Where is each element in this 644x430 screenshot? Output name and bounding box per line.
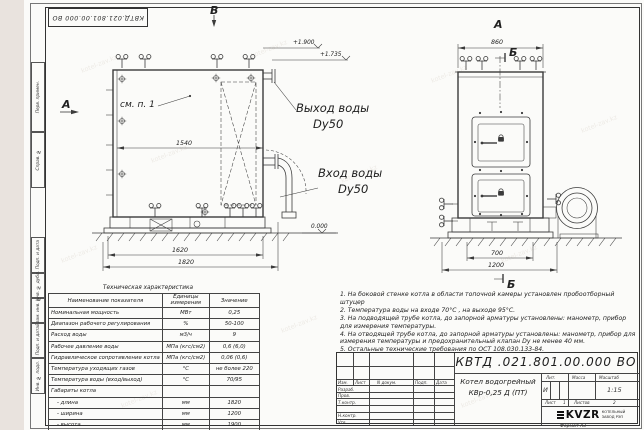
valve-icon (476, 57, 488, 71)
row-name: Габариты котла (49, 386, 163, 397)
col-header-name: Наименование показателя (49, 294, 163, 308)
ground-hatch (96, 233, 289, 241)
valve-icon (460, 57, 472, 71)
row-name: Рабочее давление воды (49, 341, 163, 352)
lit-label: Лит. (546, 375, 556, 380)
scale-value: 1:15 (607, 386, 622, 394)
table-row: Габариты котла (49, 386, 260, 397)
mass-label: Масса (572, 375, 585, 380)
see-note-label: см. п. 1 (120, 100, 155, 110)
outlet-dn: Dy50 (313, 117, 343, 131)
row-name: - длина (49, 397, 163, 408)
valve-icon (224, 204, 236, 218)
sheets-label: Листов (574, 400, 590, 405)
sheet-label: Лист (545, 400, 556, 405)
row-prov: Пров. (338, 393, 350, 398)
col-ndoc: N докум. (377, 380, 396, 385)
table-row: Диапазон рабочего регулирования%50-100 (49, 319, 260, 330)
sheets-value: 2 (613, 400, 616, 405)
col-list: Лист (355, 380, 366, 385)
valve-icon (116, 55, 128, 69)
valve-icon (250, 204, 262, 218)
row-value: 1900 (209, 419, 259, 430)
doc-title: Котел водогрейный КВр-0,25 Д (ПТ) (455, 377, 541, 399)
row-unit: мм (162, 408, 209, 419)
row-unit: мм (162, 419, 209, 430)
view-letter-B: В (210, 4, 218, 17)
ground-hatch (434, 238, 616, 246)
col-data: Дата (436, 380, 447, 385)
section-mark-bottom (494, 274, 503, 283)
fan-duct (543, 207, 556, 218)
table-row: Рабочее давление водыМПа (кгс/см2)0,6 (6… (49, 341, 260, 352)
dim-1540: 1540 (176, 140, 192, 147)
col-izm: Изм. (338, 380, 348, 385)
note-item: 2. Температура воды на входе 70°С , на в… (340, 307, 638, 315)
format-label: Формат А3 (560, 424, 586, 429)
col-header-unit: Единицы измерения (162, 294, 209, 308)
row-name: Номинальная мощность (49, 308, 163, 319)
table-row: - ширинамм1200 (49, 408, 260, 419)
company-logo: KVZR КОТЕЛЬНЫЙ ЗАВОД РЭП (545, 407, 637, 423)
logo-sub2: ЗАВОД РЭП (602, 415, 626, 420)
row-value: 50-100 (209, 319, 259, 330)
dimension-line (458, 44, 543, 68)
col-podp: Подп. (415, 380, 428, 385)
dim-1620: 1620 (172, 247, 188, 254)
table-row: - высотамм1900 (49, 419, 260, 430)
row-name: Температура уходящих газов (49, 363, 163, 374)
note-item: 4. На отводящей трубе котла, до запорной… (340, 331, 638, 346)
row-value: не более 220 (209, 363, 259, 374)
valve-icon (440, 215, 454, 227)
center-mark (118, 117, 126, 125)
side-view-letter-A: А (494, 18, 503, 31)
table-row: Номинальная мощностьМВт0,25 (49, 308, 260, 319)
drawing-sheet: kotel-zav.kz kotel-zav.kz kotel-zav.kz k… (0, 0, 644, 430)
title-designation: КВТД .021.801.00.000 ВО (455, 355, 637, 369)
spec-table-title: Техническая характеристика (48, 285, 248, 291)
row-value: 0,6 (6,0) (209, 341, 259, 352)
row-razrab: Разраб. (338, 387, 354, 392)
lit-value: И (543, 386, 548, 394)
logo-subtext: КОТЕЛЬНЫЙ ЗАВОД РЭП (602, 410, 626, 419)
row-unit: МВт (162, 308, 209, 319)
inlet-label: Вход воды (318, 166, 382, 180)
center-mark (247, 74, 255, 82)
fan-blower (557, 188, 599, 239)
row-unit: МПа (кгс/см2) (162, 352, 209, 363)
row-value: 9 (209, 330, 259, 341)
col-header-value: Значение (209, 294, 259, 308)
spec-header-row: Наименование показателя Единицы измерени… (49, 294, 260, 308)
row-name: - ширина (49, 408, 163, 419)
center-mark (212, 74, 220, 82)
direction-letter-A: А (62, 98, 71, 111)
logo-text: KVZR (566, 409, 600, 421)
level-1900: +1.900 (293, 40, 314, 46)
valve-icon (243, 55, 255, 69)
level-0000: 0.000 (311, 224, 328, 230)
table-row: Расход водым3/ч9 (49, 330, 260, 341)
valve-icon (530, 57, 542, 71)
row-value (209, 386, 259, 397)
dashed-panel (221, 82, 256, 205)
scale-label: Масштаб (599, 375, 619, 380)
side-view-drawing (430, 44, 622, 283)
table-row: Температура воды (вход/выход)°С70/95 (49, 375, 260, 386)
note-item: 3. На подводящей трубе котла, до запорно… (340, 315, 638, 330)
row-unit (162, 386, 209, 397)
row-tkontr: Т.контр. (338, 400, 356, 405)
row-unit: °С (162, 375, 209, 386)
center-mark (118, 75, 126, 83)
row-value: 70/95 (209, 375, 259, 386)
row-unit: м3/ч (162, 330, 209, 341)
row-value: 0,25 (209, 308, 259, 319)
row-unit: мм (162, 397, 209, 408)
row-utv: Утв. (338, 420, 347, 425)
doc-title-line2: КВр-0,25 Д (ПТ) (455, 388, 541, 399)
valve-icon (149, 204, 161, 218)
valve-icon (440, 198, 454, 210)
row-name: - высота (49, 419, 163, 430)
inlet-elbow-pipe (263, 150, 306, 218)
row-name: Расход воды (49, 330, 163, 341)
row-value: 0,06 (0,6) (209, 352, 259, 363)
inlet-dn: Dy50 (338, 182, 368, 196)
row-value: 1820 (209, 397, 259, 408)
row-unit: % (162, 319, 209, 330)
valve-icon (196, 204, 208, 218)
furnace-door-upper (472, 117, 530, 167)
level-mark (263, 44, 350, 233)
doc-title-line1: Котел водогрейный (455, 377, 541, 388)
table-row: Гидравлическое сопротивление котлаМПа (к… (49, 352, 260, 363)
door-bolts (474, 111, 528, 216)
boiler-base (448, 218, 553, 238)
valve-icon (139, 55, 151, 69)
dim-700: 700 (491, 250, 503, 257)
valve-icon (237, 204, 249, 218)
valve-icon (211, 55, 223, 69)
row-value: 1200 (209, 408, 259, 419)
row-unit: МПа (кгс/см2) (162, 341, 209, 352)
dim-860: 860 (491, 39, 503, 46)
note-item: 1. На боковой стенке котла в области топ… (340, 291, 638, 306)
title-block: КВТД .021.801.00.000 ВО Котел водогрейны… (336, 352, 638, 424)
row-name: Температура воды (вход/выход) (49, 375, 163, 386)
center-mark (118, 170, 126, 178)
section-letter-bottom: Б (507, 278, 515, 291)
row-unit: °С (162, 363, 209, 374)
table-row: - длинамм1820 (49, 397, 260, 408)
lock-icon (498, 135, 504, 142)
table-row: Температура уходящих газов°Сне более 220 (49, 363, 260, 374)
section-letter-top: Б (509, 46, 517, 59)
lock-icon (498, 189, 504, 196)
notes-block: 1. На боковой стенке котла в области топ… (340, 291, 638, 355)
level-1735: +1.735 (320, 52, 341, 58)
front-view-drawing (60, 15, 350, 271)
row-name: Гидравлическое сопротивление котла (49, 352, 163, 363)
dim-1820: 1820 (178, 259, 194, 266)
boiler-base (104, 217, 271, 233)
outlet-label: Выход воды (296, 101, 369, 115)
outlet-pipe (263, 69, 275, 83)
row-nkontr: Н.контр. (338, 413, 357, 418)
spec-table: Наименование показателя Единицы измерени… (48, 293, 260, 430)
row-name: Диапазон рабочего регулирования (49, 319, 163, 330)
sheet-value: 1 (563, 400, 566, 405)
dim-1200: 1200 (488, 262, 504, 269)
logo-bars-icon (557, 411, 564, 419)
